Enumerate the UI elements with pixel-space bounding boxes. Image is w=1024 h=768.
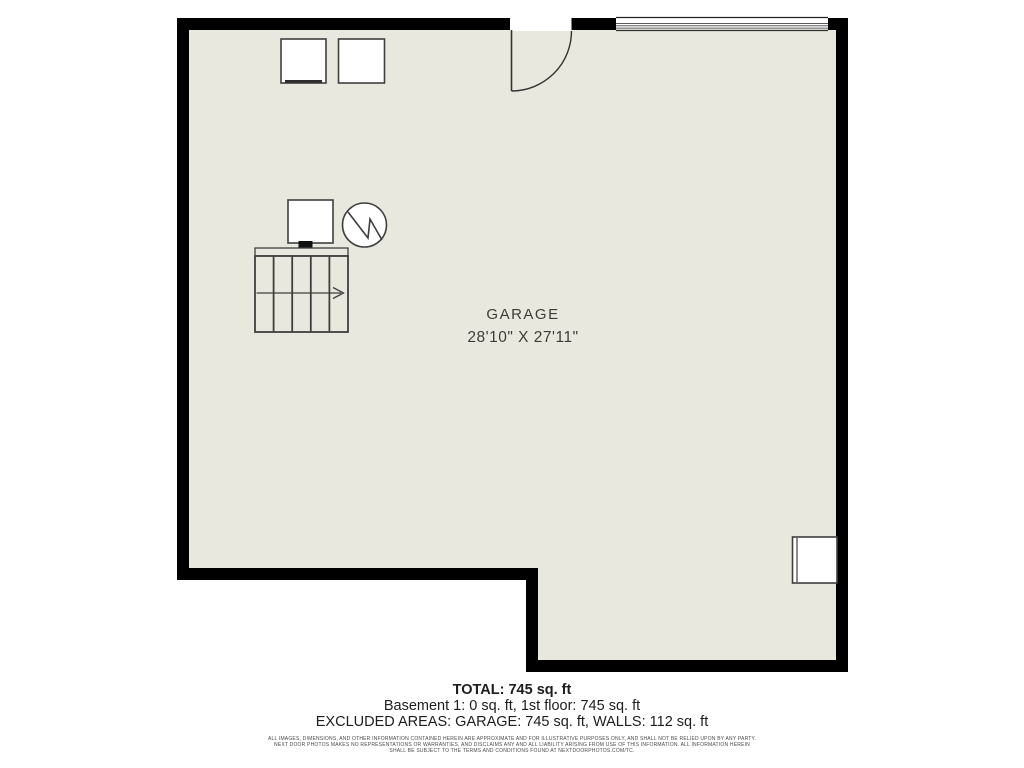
room-label: GARAGE [373,306,673,323]
stairs-outline [255,256,348,332]
summary-total: TOTAL: 745 sq. ft [0,682,1024,698]
summary-floors: Basement 1: 0 sq. ft, 1st floor: 745 sq.… [0,698,1024,714]
garage-door-icon [616,17,828,32]
summary-excluded: EXCLUDED AREAS: GARAGE: 745 sq. ft, WALL… [0,714,1024,730]
floorplan-page: GARAGE 28'10" X 27'11" TOTAL: 745 sq. ft… [0,0,1024,768]
disclaimer-text: ALL IMAGES, DIMENSIONS, AND OTHER INFORM… [0,736,1024,754]
water-heater-icon [343,203,387,247]
appliance-left-icon [281,39,326,83]
wall-appliance-icon [793,537,838,583]
stairs-icon [255,241,348,332]
door-opening-gap [510,17,572,32]
room-dimensions: 28'10" X 27'11" [373,329,673,347]
appliance-right-icon [339,39,385,83]
disclaimer-line-3: SHALL BE SUBJECT TO THE TERMS AND CONDIT… [0,748,1024,754]
stairs-top-rail [255,248,348,256]
furnace-icon [288,200,333,243]
summary-footer: TOTAL: 745 sq. ft Basement 1: 0 sq. ft, … [0,682,1024,754]
